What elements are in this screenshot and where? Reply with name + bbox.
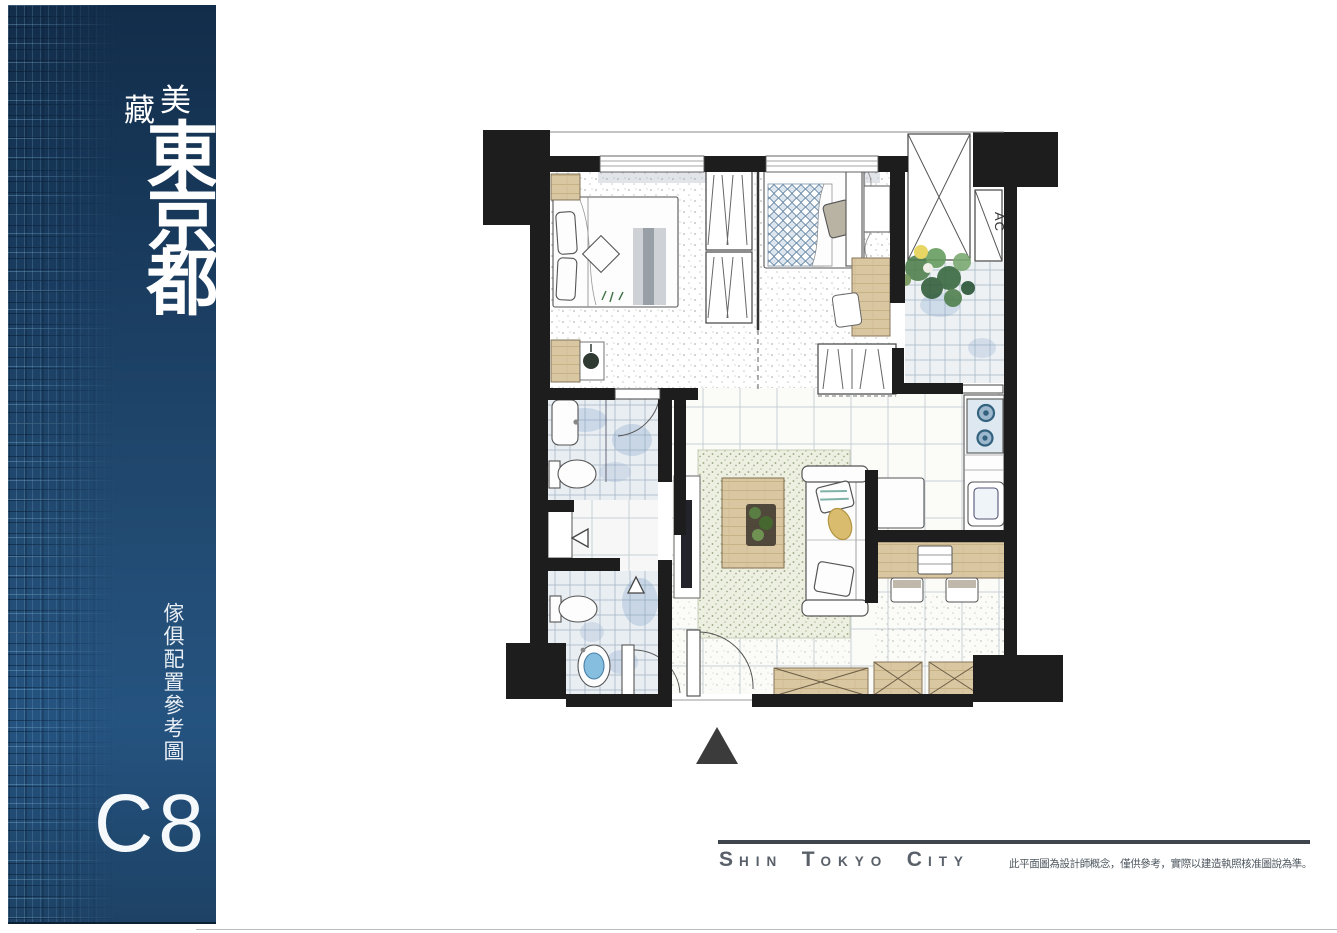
column-top-left <box>483 130 550 225</box>
unit-label: C8 <box>94 777 209 871</box>
brand-word: CITY <box>907 853 970 870</box>
entrance-triangle-marker <box>696 727 738 764</box>
bathroom-1-door <box>615 389 660 399</box>
disclaimer-text: 此平面圖為設計師概念，僅供參考，實際以建造執照核准圖說為準。 <box>1009 856 1309 871</box>
ac-unit: AC <box>975 190 1007 261</box>
bedroom-2-shelf <box>818 344 896 396</box>
tagline-char-2: 美 <box>160 75 191 120</box>
brand-wordmark: SHIN TOKYO CITY <box>719 848 984 872</box>
ac-platform <box>908 134 970 260</box>
brand-word: TOKYO <box>802 853 889 870</box>
bed-1 <box>553 197 678 307</box>
window-shadow <box>598 172 706 183</box>
project-name: 東京都 <box>140 117 212 309</box>
plan-caption: 傢俱配置參考圖 <box>158 602 188 763</box>
coffee-table <box>722 478 784 568</box>
scan-artifact-line <box>196 929 1337 930</box>
sofa <box>802 466 868 616</box>
column-bottom-right <box>973 655 1063 702</box>
column-bottom-left <box>506 643 566 699</box>
column-top-right <box>973 132 1058 187</box>
footer-rule <box>718 840 1310 844</box>
sidebar-banner: 藏 美 東京都 傢俱配置參考圖 C8 <box>8 5 216 924</box>
brand-word: SHIN <box>719 853 783 870</box>
kitchen-table <box>876 478 924 528</box>
brochure-page: AC <box>0 0 1337 933</box>
